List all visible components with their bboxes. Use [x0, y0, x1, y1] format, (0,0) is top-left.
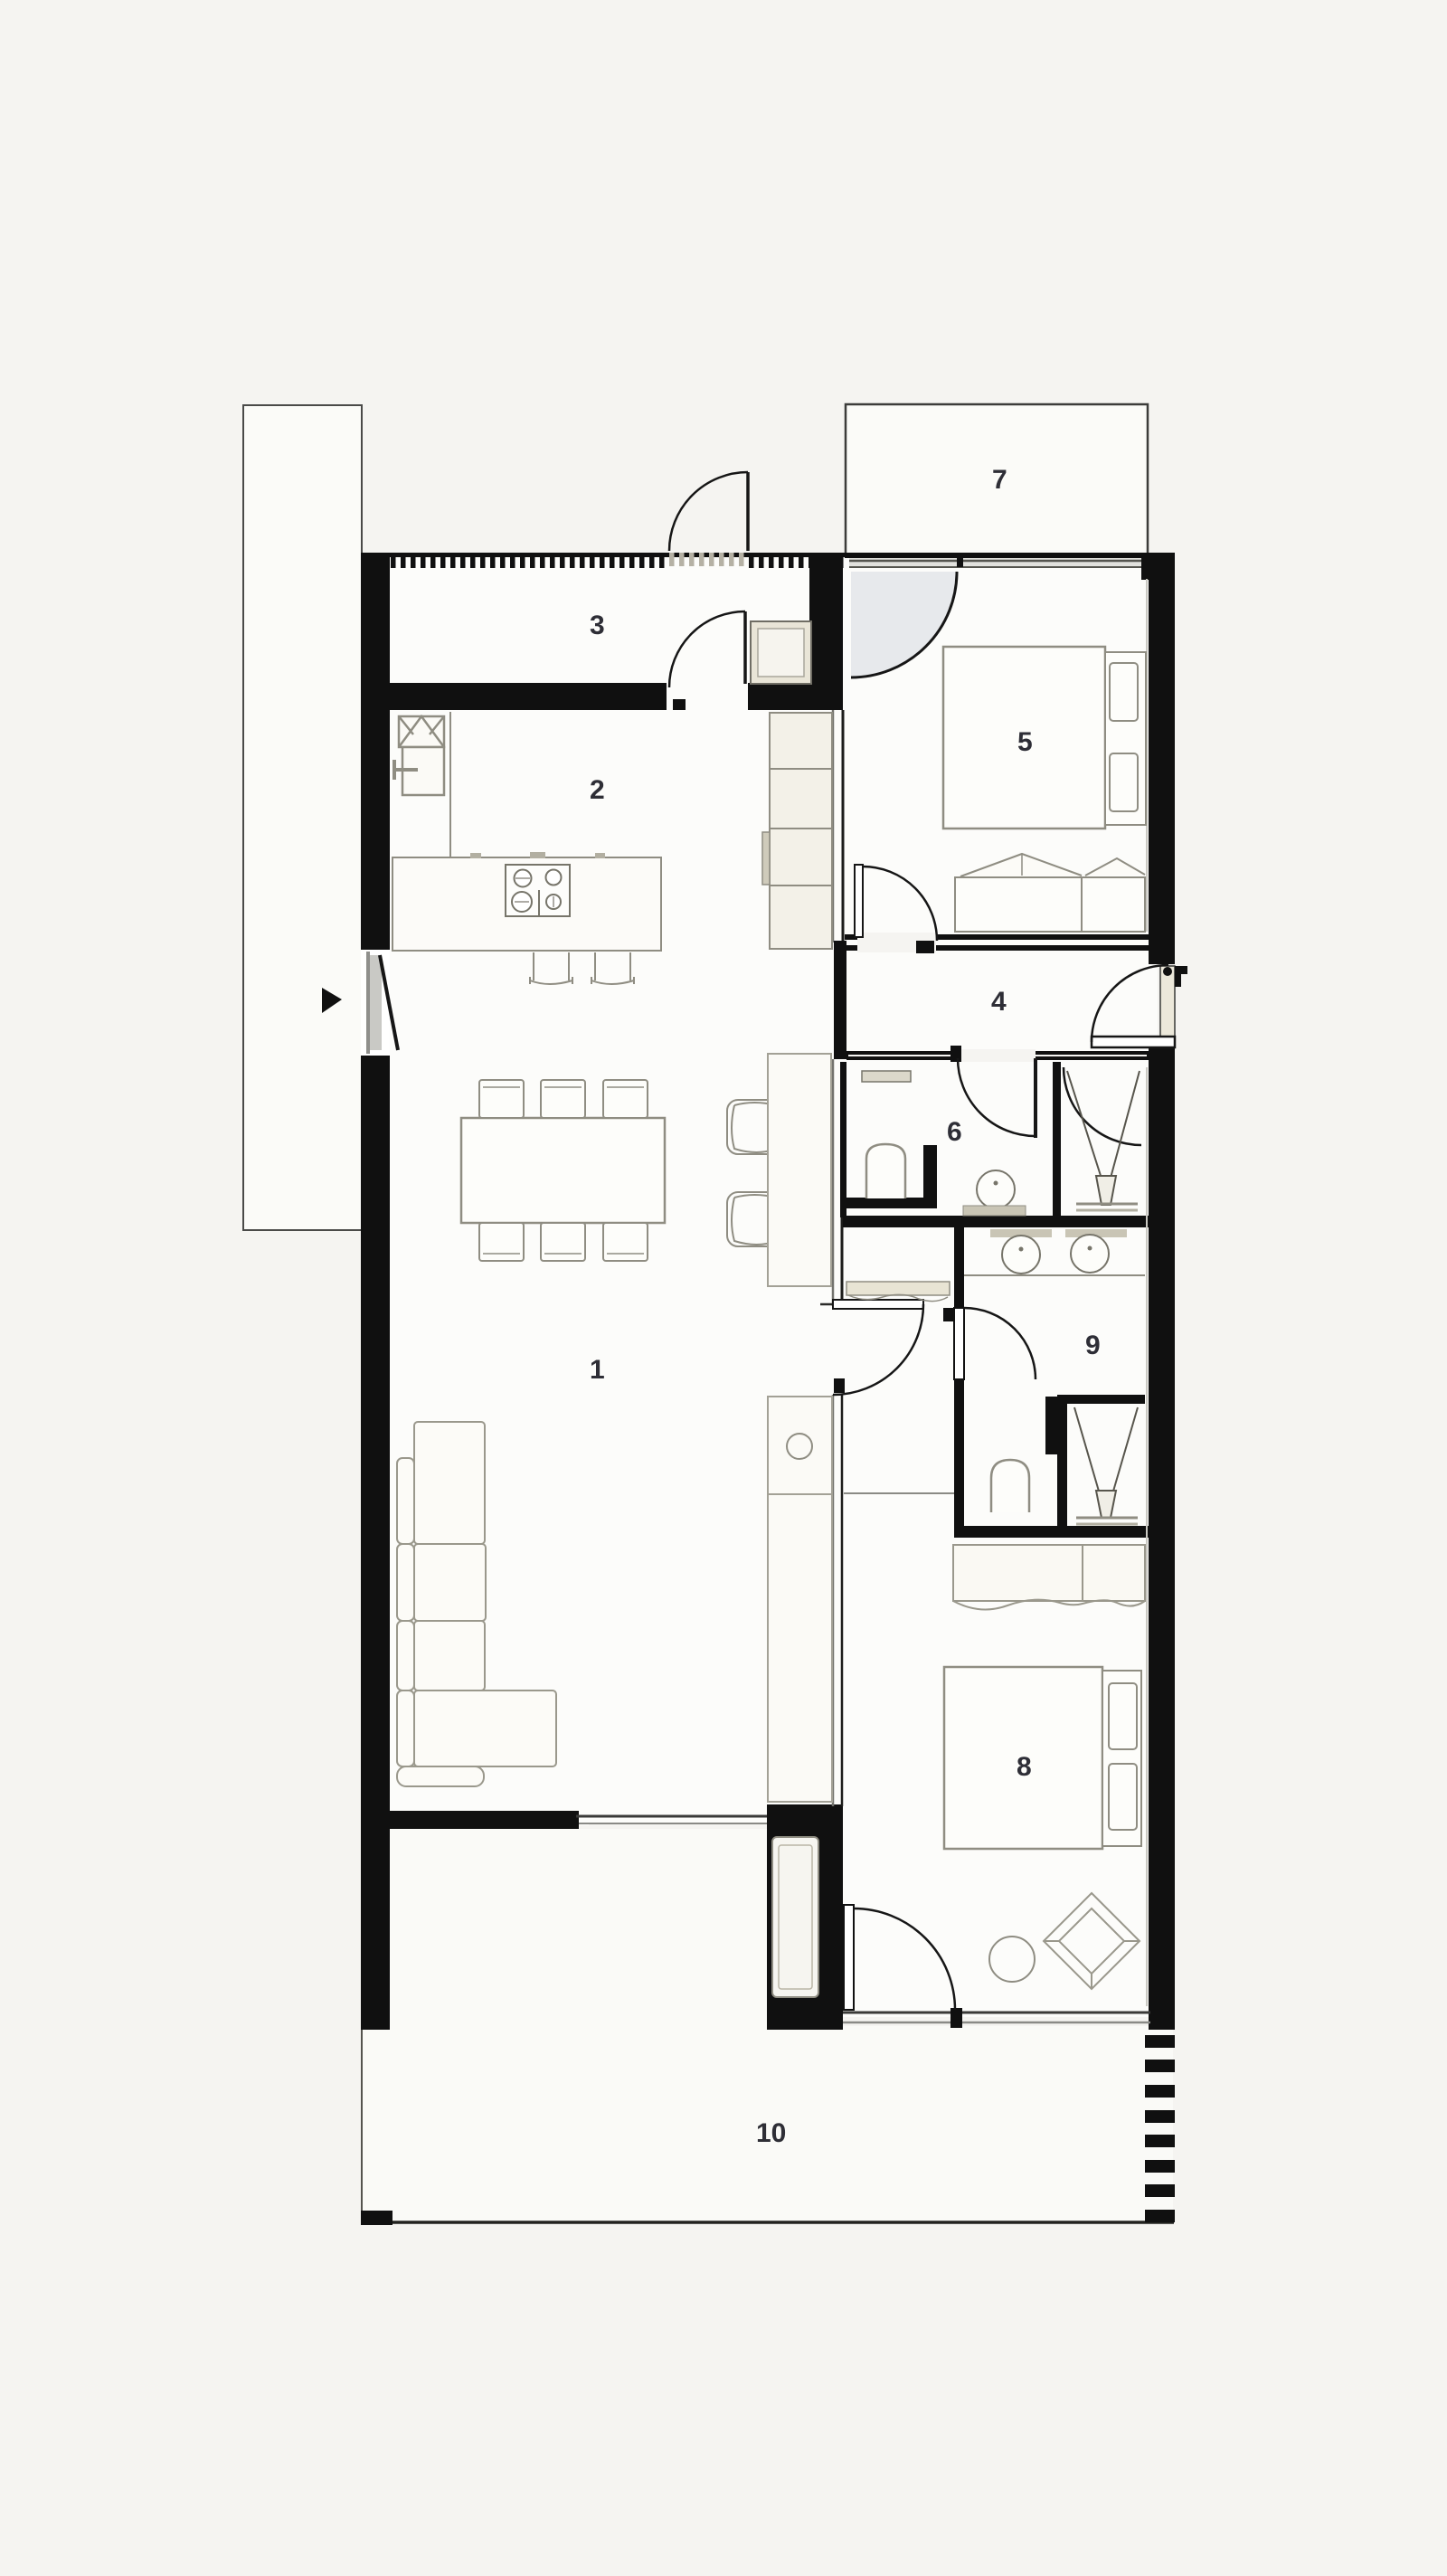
svg-text:1: 1	[590, 1355, 605, 1385]
svg-text:7: 7	[992, 465, 1007, 495]
svg-text:9: 9	[1085, 1331, 1101, 1360]
svg-text:4: 4	[991, 987, 1007, 1017]
svg-text:3: 3	[590, 611, 605, 640]
svg-text:5: 5	[1017, 727, 1033, 757]
svg-text:8: 8	[1017, 1752, 1032, 1782]
svg-text:2: 2	[590, 775, 605, 805]
svg-text:10: 10	[756, 2118, 786, 2148]
svg-text:6: 6	[947, 1117, 962, 1147]
